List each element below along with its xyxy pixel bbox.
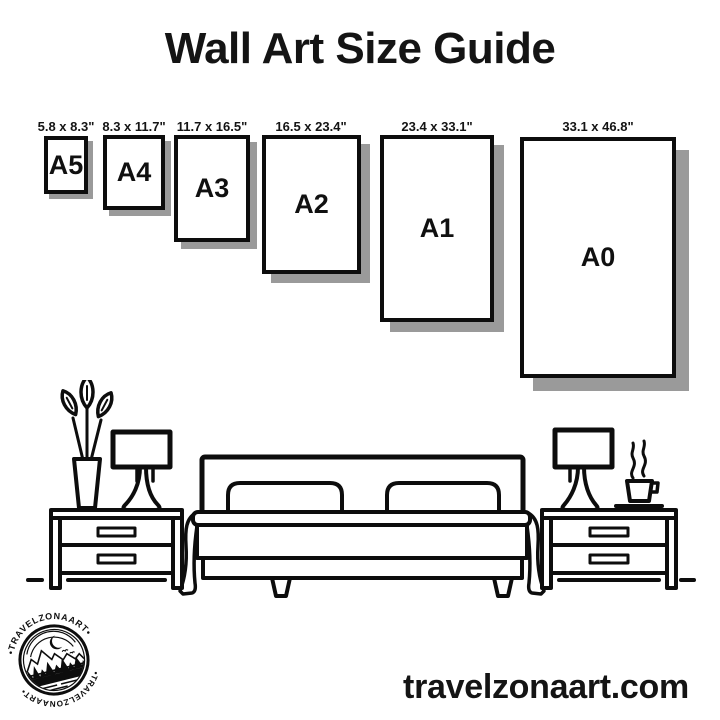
svg-text:•TRAVELZONAART•: •TRAVELZONAART• — [2, 608, 95, 657]
blanket-panel — [197, 525, 527, 558]
size-letter-a5: A5 — [49, 150, 84, 181]
drawer-handle — [98, 528, 135, 536]
size-letter-a2: A2 — [294, 189, 329, 220]
dimension-label-a1: 23.4 x 33.1" — [401, 119, 472, 134]
website-url: travelzonaart.com — [403, 668, 689, 707]
steam — [643, 441, 646, 476]
nightstand-right — [542, 510, 676, 588]
page-title: Wall Art Size Guide — [165, 24, 556, 74]
size-letter-a1: A1 — [420, 213, 455, 244]
size-letter-a0: A0 — [581, 242, 616, 273]
cup-body — [627, 481, 652, 501]
plant-vase-icon — [58, 380, 115, 508]
plant-stem — [91, 420, 101, 460]
paper-frame-a3: A3 — [174, 135, 250, 242]
coffee-cup-icon — [616, 441, 662, 506]
lamp-shade — [555, 430, 612, 467]
bed-leg — [272, 578, 290, 596]
vase — [74, 459, 100, 508]
dimension-label-a0: 33.1 x 46.8" — [562, 119, 633, 134]
table-lamp-right — [555, 430, 612, 510]
drawer-handle — [590, 555, 628, 563]
double-bed-icon — [180, 457, 544, 596]
dimension-label-a4: 8.3 x 11.7" — [102, 119, 165, 134]
dimension-label-a3: 11.7 x 16.5" — [177, 119, 248, 134]
drawer-handle — [590, 528, 628, 536]
steam — [632, 443, 635, 478]
dimension-label-a5: 5.8 x 8.3" — [38, 119, 95, 134]
dimension-label-a2: 16.5 x 23.4" — [275, 119, 346, 134]
pillow-icon — [387, 483, 499, 514]
table-lamp-left — [113, 432, 170, 510]
nightstand-left — [51, 510, 182, 588]
size-guide-poster: Wall Art Size Guide 5.8 x 8.3" 8.3 x 11.… — [0, 0, 720, 720]
bed-base — [203, 558, 522, 578]
brand-badge-emblem: •TRAVELZONAART• •TRAVELZONAART• — [2, 608, 106, 712]
pillow-icon — [228, 483, 342, 514]
paper-frame-a4: A4 — [103, 135, 165, 210]
bed-leg — [494, 578, 512, 596]
drawer-handle — [98, 555, 135, 563]
lamp-shade — [113, 432, 170, 467]
paper-frame-a0: A0 — [520, 137, 676, 378]
bedroom-illustration — [0, 380, 720, 610]
badge-text-top: •TRAVELZONAART• — [2, 608, 95, 657]
paper-frame-a2: A2 — [262, 135, 361, 274]
size-letter-a4: A4 — [117, 157, 152, 188]
brand-badge: •TRAVELZONAART• •TRAVELZONAART• — [2, 608, 106, 716]
size-letter-a3: A3 — [195, 173, 230, 204]
paper-frame-a5: A5 — [44, 136, 88, 194]
plant-stem — [73, 418, 83, 460]
paper-frame-a1: A1 — [380, 135, 494, 322]
lamp-base — [563, 467, 598, 510]
